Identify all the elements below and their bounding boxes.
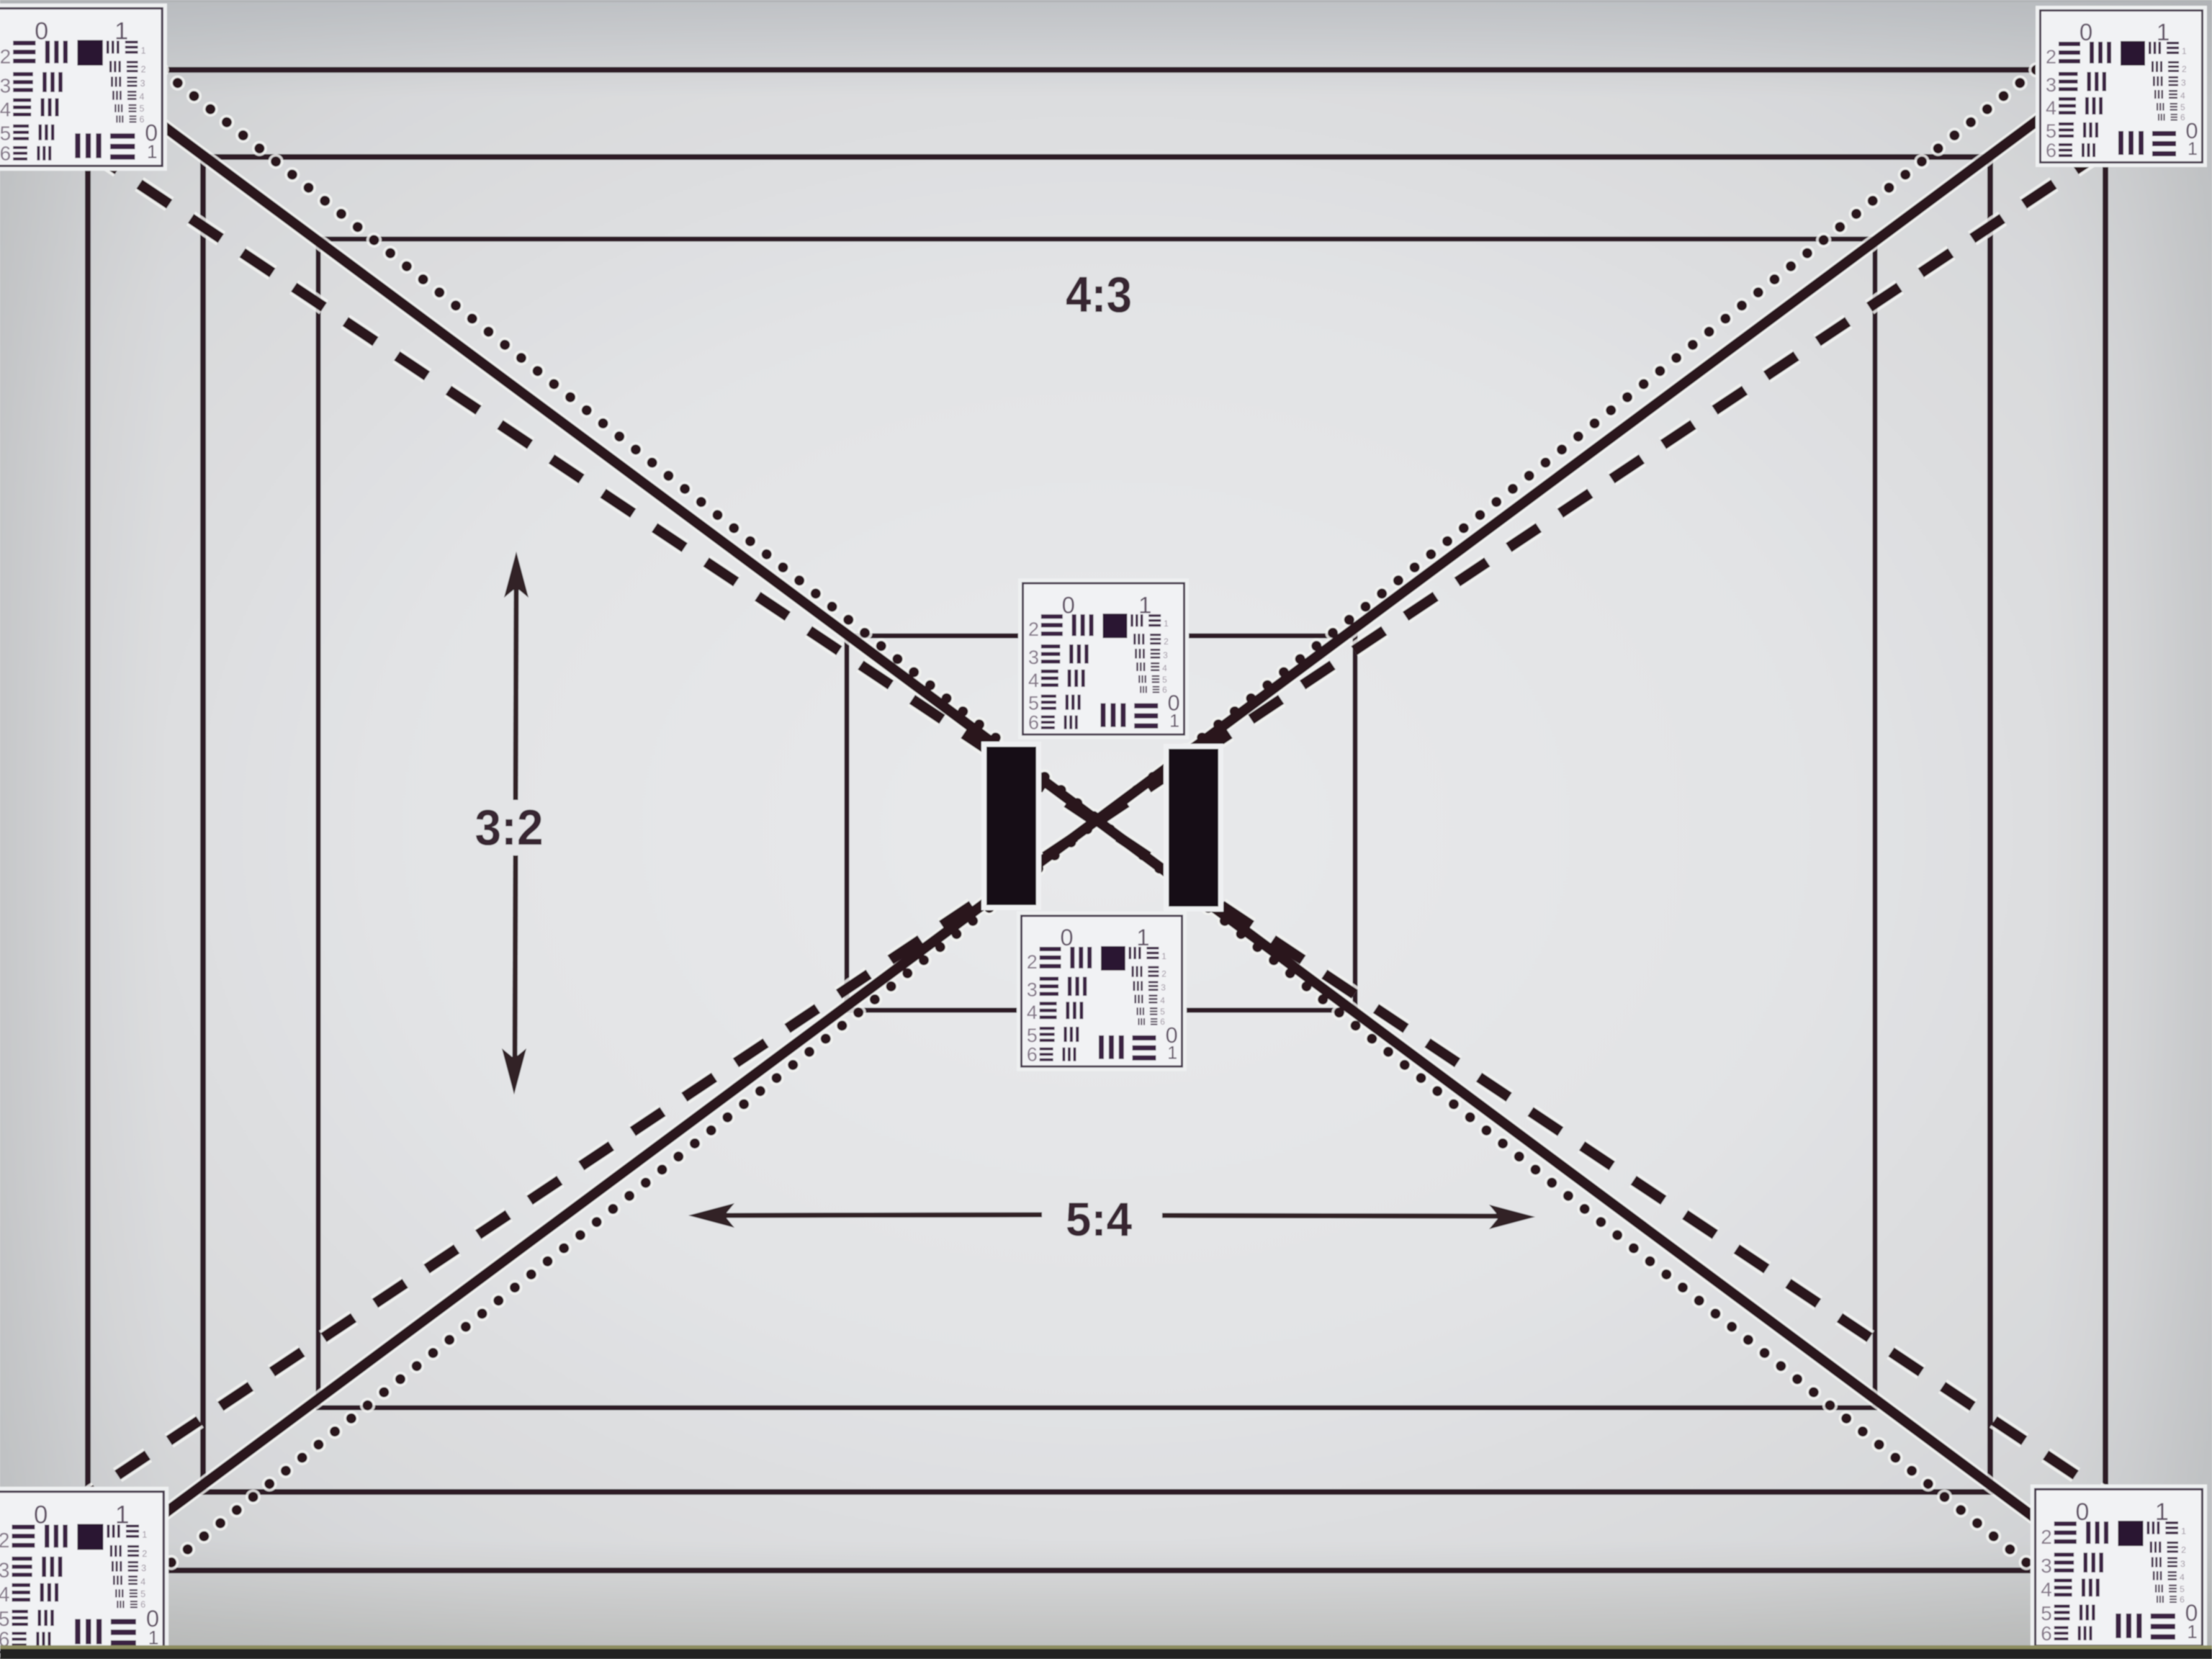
svg-text:3:2: 3:2 [475, 799, 544, 855]
svg-text:5:4: 5:4 [1066, 1192, 1132, 1246]
svg-text:4:3: 4:3 [1066, 266, 1132, 323]
